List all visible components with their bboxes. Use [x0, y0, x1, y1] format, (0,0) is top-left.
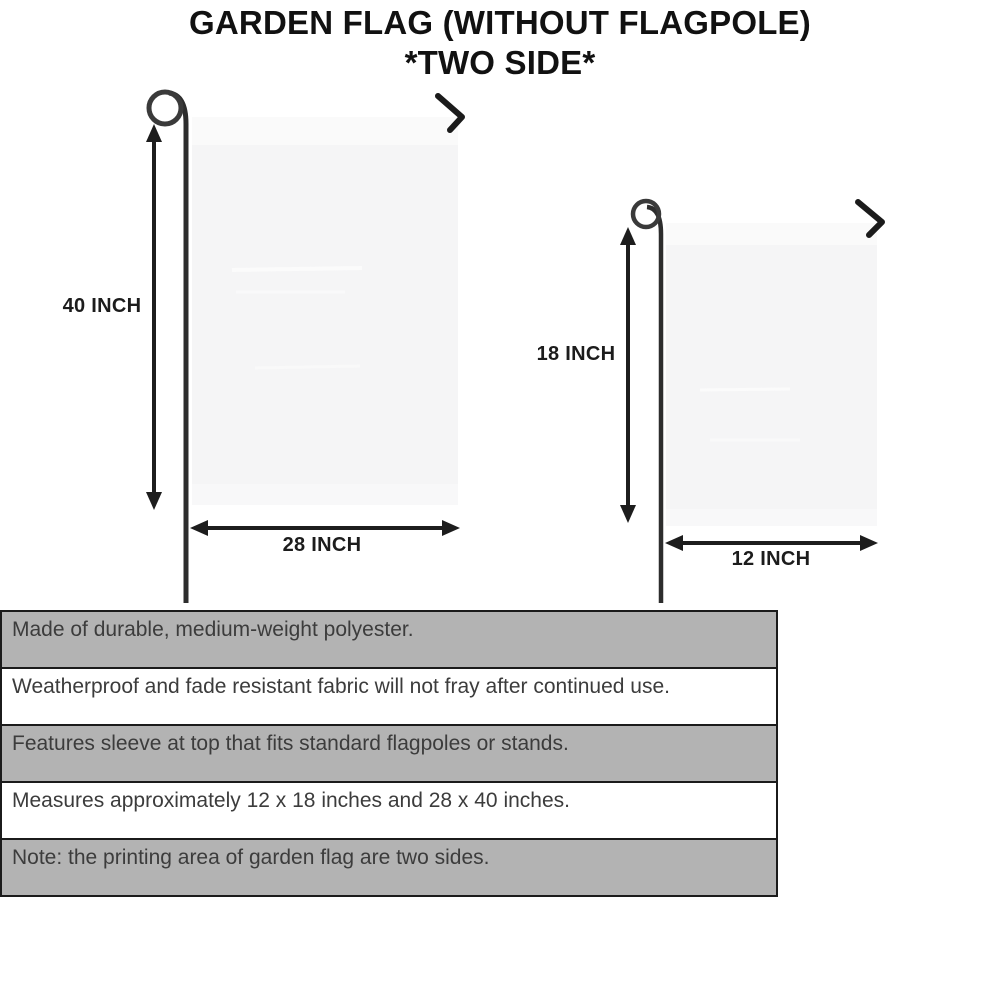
small-flag-height-label: 18 INCH: [511, 343, 641, 366]
large-flag-hem: [192, 484, 458, 505]
feature-table: Made of durable, medium-weight polyester…: [0, 610, 778, 897]
large-flag-sleeve: [192, 117, 458, 145]
feature-row: Features sleeve at top that fits standar…: [2, 724, 776, 781]
small-flag-fold-line: [700, 389, 790, 390]
small-flag-hem: [666, 509, 877, 526]
small-flag-width-label: 12 INCH: [706, 548, 836, 571]
small-flag-pole: [647, 207, 661, 603]
garden-flag-size-infographic: GARDEN FLAG (WITHOUT FLAGPOLE) *TWO SIDE…: [0, 0, 1000, 1000]
large-flag-width-label: 28 INCH: [257, 534, 387, 557]
feature-row: Weatherproof and fade resistant fabric w…: [2, 667, 776, 724]
large-flag-pole: [169, 93, 186, 603]
feature-row: Made of durable, medium-weight polyester…: [2, 612, 776, 667]
large-flag-group: [146, 92, 462, 603]
small-flag-fabric: [666, 223, 877, 526]
large-flag-pole-loop: [149, 92, 181, 124]
feature-row: Note: the printing area of garden flag a…: [2, 838, 776, 895]
feature-row: Measures approximately 12 x 18 inches an…: [2, 781, 776, 838]
large-flag-fold-line: [232, 268, 362, 270]
large-flag-fold-line: [255, 366, 360, 368]
large-flag-height-label: 40 INCH: [37, 295, 167, 318]
large-flag-fabric: [192, 117, 458, 505]
small-flag-height-arrow: [620, 227, 636, 523]
small-flag-sleeve: [666, 223, 877, 245]
small-flag-group: [620, 201, 882, 603]
